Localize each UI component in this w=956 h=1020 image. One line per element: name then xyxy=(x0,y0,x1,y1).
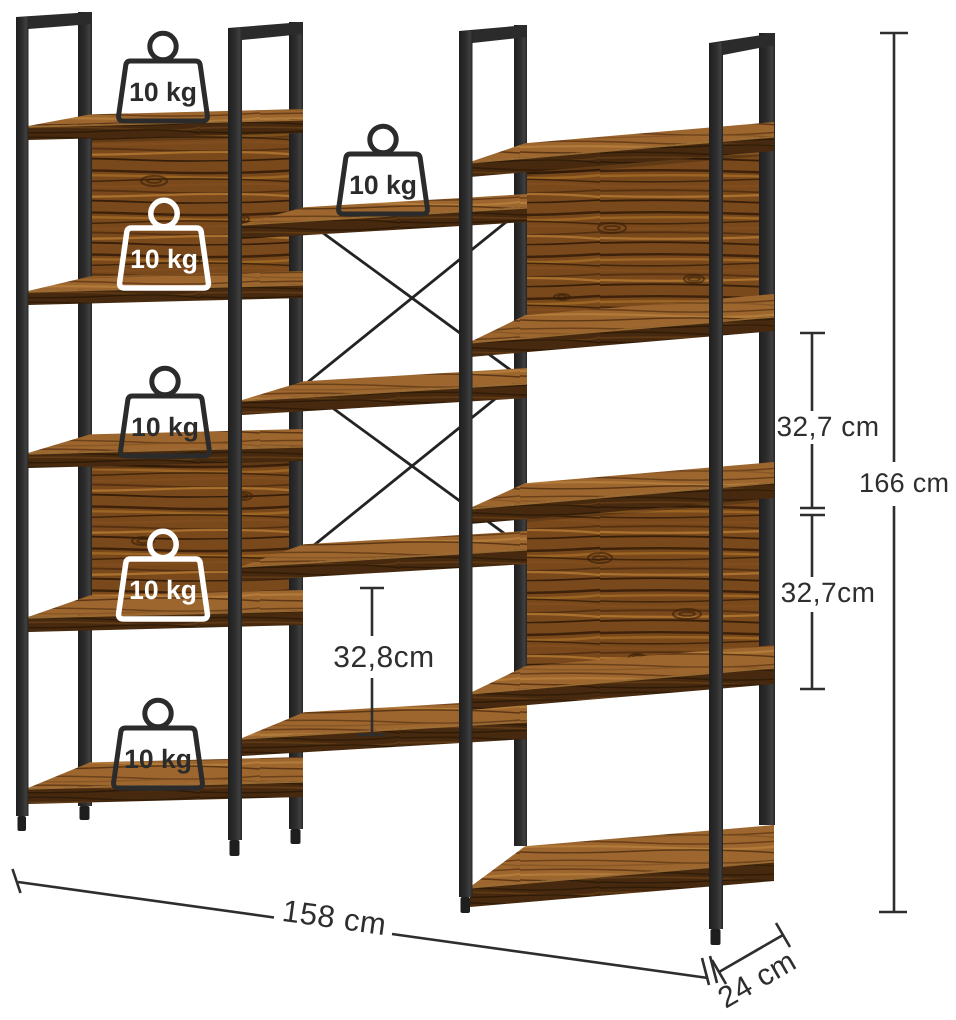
svg-text:32,7 cm: 32,7 cm xyxy=(776,411,879,442)
svg-text:32,7cm: 32,7cm xyxy=(781,577,876,608)
svg-text:10 kg: 10 kg xyxy=(349,170,417,200)
svg-text:10 kg: 10 kg xyxy=(124,744,192,774)
svg-text:10 kg: 10 kg xyxy=(131,412,199,442)
svg-text:10 kg: 10 kg xyxy=(129,77,197,107)
svg-text:32,8cm: 32,8cm xyxy=(333,641,434,674)
svg-text:10 kg: 10 kg xyxy=(130,244,198,274)
svg-text:10 kg: 10 kg xyxy=(129,575,197,605)
svg-text:166 cm: 166 cm xyxy=(859,468,949,498)
